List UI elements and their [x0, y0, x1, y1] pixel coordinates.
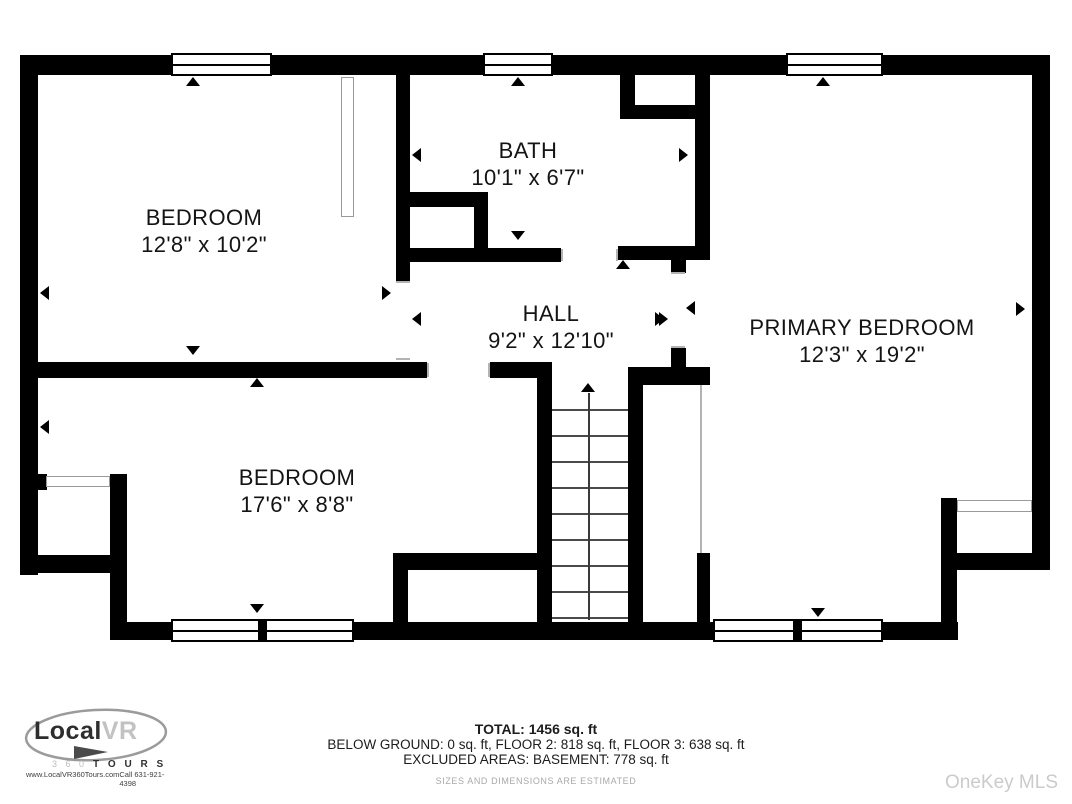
wall	[671, 348, 686, 367]
room-dimensions: 17'6" x 8'8"	[187, 491, 407, 518]
room-name: PRIMARY BEDROOM	[712, 314, 1012, 341]
dimension-arrow-icon	[382, 286, 391, 300]
window	[713, 619, 883, 642]
dimension-arrow-icon	[679, 148, 688, 162]
door-jamb-line	[396, 281, 410, 283]
window-mullion	[258, 619, 267, 642]
stair-direction-line	[588, 393, 590, 620]
window-glass-line	[173, 64, 270, 66]
window	[171, 619, 354, 642]
room-dimensions: 10'1" x 6'7"	[428, 164, 628, 191]
door-jamb-line	[700, 385, 702, 553]
wall	[695, 75, 710, 258]
area-summary: TOTAL: 1456 sq. ft BELOW GROUND: 0 sq. f…	[276, 722, 796, 786]
room-name: BEDROOM	[187, 464, 407, 491]
logo-text-local: Local	[34, 717, 102, 745]
dimension-arrow-icon	[186, 77, 200, 86]
window-glass-line	[788, 64, 881, 66]
logo-360: 3 6 0	[52, 759, 87, 769]
dimension-arrow-icon	[412, 312, 421, 326]
onekey-mls-watermark: OneKey MLS	[945, 772, 1058, 794]
dimension-arrow-icon	[412, 148, 421, 162]
room-label-primary-bedroom: PRIMARY BEDROOM 12'3" x 19'2"	[712, 314, 1012, 368]
wall	[618, 246, 710, 260]
stair-up-arrow-icon	[581, 383, 595, 392]
dimension-arrow-icon	[250, 378, 264, 387]
wall	[20, 362, 427, 378]
room-label-hall: HALL 9'2" x 12'10"	[441, 300, 661, 354]
door-leaf	[46, 476, 110, 487]
window-mullion	[793, 619, 802, 642]
door-jamb-line	[427, 363, 429, 377]
wall	[393, 553, 548, 570]
logo-phone: Call 631-921-4398	[119, 770, 176, 788]
room-name: HALL	[441, 300, 661, 327]
room-name: BATH	[428, 137, 628, 164]
total-area-text: TOTAL: 1456 sq. ft	[276, 722, 796, 737]
wall	[957, 553, 1050, 570]
room-label-bedroom-2: BEDROOM 17'6" x 8'8"	[187, 464, 407, 518]
wall	[393, 553, 408, 640]
door-jamb-line	[561, 249, 563, 261]
door-opening	[427, 362, 490, 378]
dimension-arrow-icon	[686, 301, 695, 315]
staircase	[552, 385, 628, 622]
window	[483, 53, 553, 76]
wall	[33, 474, 47, 490]
logo-website: www.LocalVR360Tours.com	[26, 770, 119, 788]
dimension-arrow-icon	[511, 231, 525, 240]
door-jamb-line	[396, 358, 410, 360]
logo-tours: T O U R S	[93, 759, 166, 770]
door-opening	[561, 248, 618, 262]
dimension-arrow-icon	[511, 77, 525, 86]
room-dimensions: 12'3" x 19'2"	[712, 341, 1012, 368]
door-leaf	[341, 77, 354, 217]
wall	[1032, 55, 1050, 570]
excluded-area-text: EXCLUDED AREAS: BASEMENT: 778 sq. ft	[276, 752, 796, 767]
wall	[110, 474, 127, 640]
dimension-arrow-icon	[811, 608, 825, 617]
room-name: BEDROOM	[96, 204, 312, 231]
door-opening	[671, 273, 686, 348]
wall	[628, 367, 710, 385]
room-dimensions: 12'8" x 10'2"	[96, 231, 312, 258]
localvr-logo: LocalVR 3 6 0T O U R S www.LocalVR360Tou…	[22, 702, 178, 786]
wall	[477, 248, 561, 262]
room-label-bedroom-1: BEDROOM 12'8" x 10'2"	[96, 204, 312, 258]
dimension-arrow-icon	[40, 286, 49, 300]
door-jamb-line	[671, 346, 685, 348]
dimension-arrow-icon	[1016, 302, 1025, 316]
dimension-arrow-icon	[250, 604, 264, 613]
wall	[20, 55, 38, 575]
dimension-arrow-icon	[816, 77, 830, 86]
wall	[941, 498, 957, 640]
door-leaf	[957, 500, 1032, 512]
wall	[697, 553, 710, 628]
wall	[537, 362, 552, 622]
room-label-bath: BATH 10'1" x 6'7"	[428, 137, 628, 191]
logo-wordmark: LocalVR	[34, 717, 138, 746]
logo-contact-line: www.LocalVR360Tours.com Call 631-921-439…	[26, 770, 176, 788]
window-glass-line	[485, 64, 551, 66]
room-dimensions: 9'2" x 12'10"	[441, 327, 661, 354]
dimension-arrow-icon	[186, 346, 200, 355]
wall	[628, 367, 643, 622]
door-jamb-line	[671, 272, 685, 274]
floor-plan-page: BEDROOM 12'8" x 10'2" BATH 10'1" x 6'7" …	[0, 0, 1072, 804]
window	[171, 53, 272, 76]
floors-area-text: BELOW GROUND: 0 sq. ft, FLOOR 2: 818 sq.…	[276, 737, 796, 752]
dimension-arrow-icon	[616, 260, 630, 269]
door-opening	[396, 282, 410, 360]
disclaimer-text: SIZES AND DIMENSIONS ARE ESTIMATED	[276, 776, 796, 786]
wall	[398, 248, 478, 262]
dimension-arrow-icon	[40, 420, 49, 434]
wall	[620, 105, 710, 119]
window	[786, 53, 883, 76]
door-jamb-line	[488, 363, 490, 377]
logo-text-vr: VR	[102, 717, 138, 745]
